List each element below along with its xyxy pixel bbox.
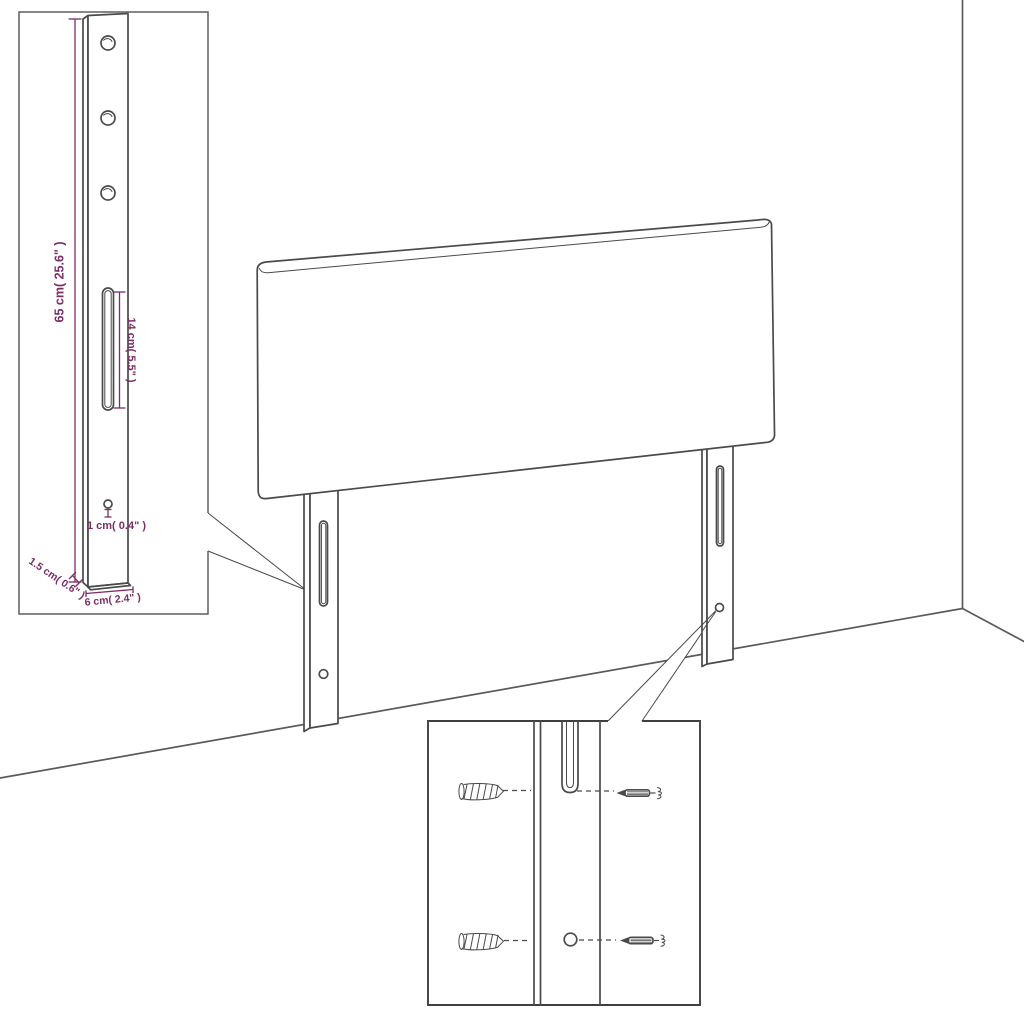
bracket-front-view — [83, 14, 131, 590]
callout-leader-line — [208, 513, 306, 590]
right-mounting-leg — [702, 440, 733, 667]
dimension-label-height: 65 cm( 25.6" ) — [53, 242, 67, 323]
mounting-callout-wedge — [608, 610, 717, 722]
left-leg-front-face — [310, 466, 338, 728]
left-leg-side-face — [304, 468, 310, 732]
callout-leader-line — [608, 610, 717, 722]
floor-right-line — [963, 609, 1024, 642]
assembly-diagram: 65 cm( 25.6" ) 14 cm( 5.5" ) 1 cm( 0.4" … — [0, 0, 1024, 1024]
headboard-panel — [257, 219, 774, 498]
assembly-diagram-page: 65 cm( 25.6" ) 14 cm( 5.5" ) 1 cm( 0.4" … — [0, 0, 1024, 1024]
bracket-callout-leaders — [208, 513, 306, 590]
panel-outline — [257, 219, 774, 498]
bracket-detail-callout: 65 cm( 25.6" ) 14 cm( 5.5" ) 1 cm( 0.4" … — [19, 12, 208, 614]
left-mounting-leg — [304, 466, 338, 732]
mounting-detail-callout — [428, 721, 700, 1005]
callout-leader-line — [208, 551, 306, 590]
bracket-front-face — [88, 14, 128, 588]
callout-box-fill — [428, 721, 700, 1005]
dimension-label-hole: 1 cm( 0.4" ) — [87, 520, 146, 532]
dimension-label-slot: 14 cm( 5.5" ) — [125, 317, 137, 382]
right-leg-front-face — [707, 440, 733, 664]
